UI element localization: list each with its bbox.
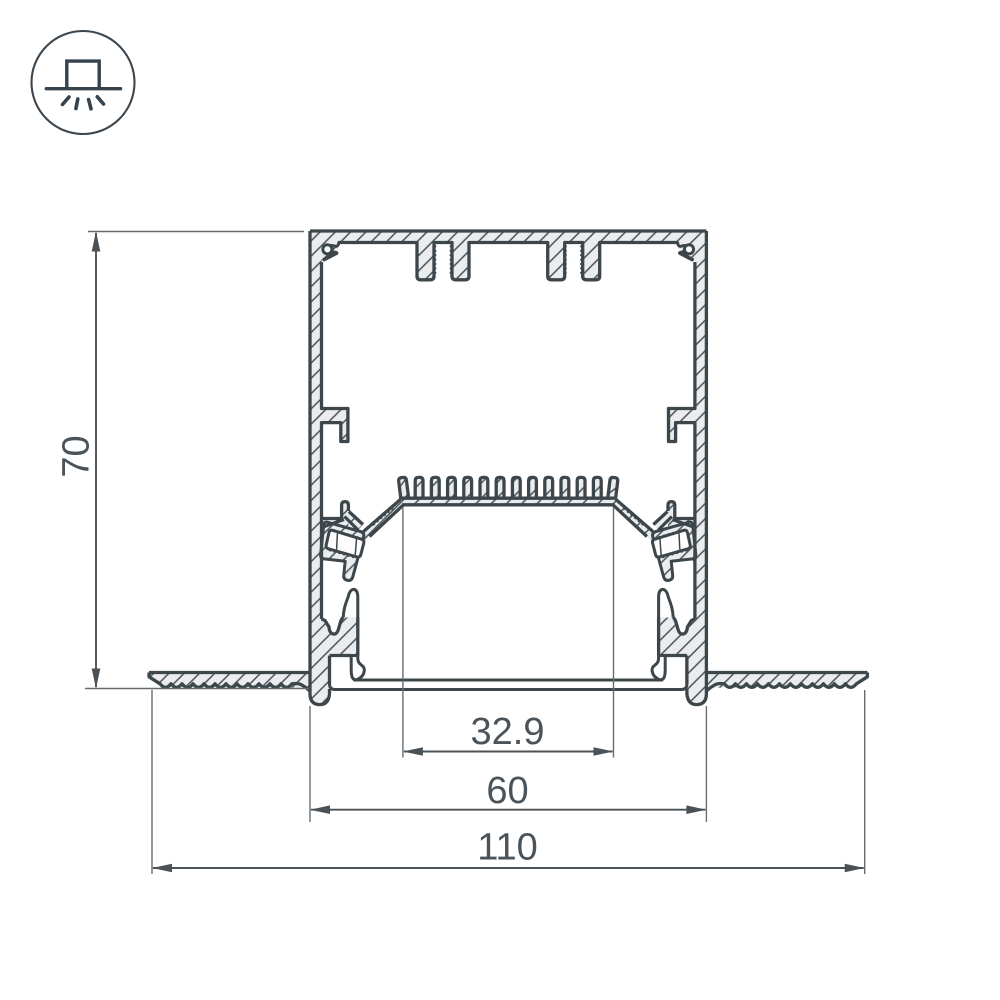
svg-text:110: 110: [477, 827, 538, 869]
svg-text:70: 70: [56, 435, 98, 477]
svg-text:32.9: 32.9: [471, 711, 545, 753]
svg-text:60: 60: [486, 770, 528, 812]
